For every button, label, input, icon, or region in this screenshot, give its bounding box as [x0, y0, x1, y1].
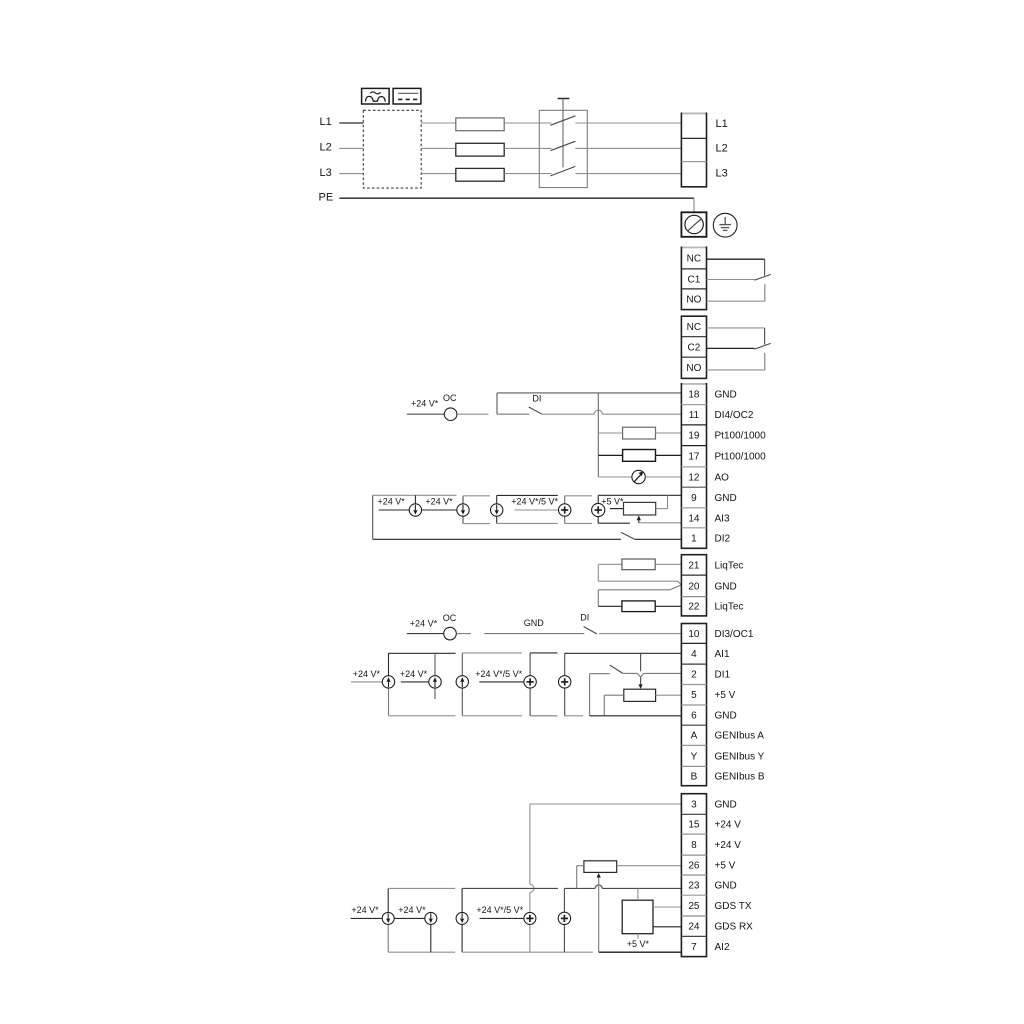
svg-text:21: 21 [688, 560, 700, 571]
svg-text:6: 6 [691, 711, 697, 722]
svg-text:L3: L3 [716, 167, 728, 179]
svg-text:OC: OC [443, 393, 457, 403]
svg-text:12: 12 [688, 472, 700, 483]
svg-text:Pt100/1000: Pt100/1000 [715, 431, 767, 442]
svg-text:DI2: DI2 [715, 533, 731, 544]
svg-text:20: 20 [688, 581, 700, 592]
svg-text:GDS RX: GDS RX [715, 922, 754, 933]
svg-text:9: 9 [691, 493, 697, 504]
svg-text:OC: OC [443, 613, 457, 623]
svg-text:L3: L3 [320, 167, 332, 179]
svg-text:+24 V*: +24 V* [400, 669, 428, 679]
svg-text:+24 V*: +24 V* [410, 618, 438, 628]
svg-text:DI: DI [532, 393, 541, 403]
svg-text:17: 17 [688, 452, 700, 463]
svg-text:+5 V*: +5 V* [601, 496, 624, 506]
svg-text:+24 V*: +24 V* [398, 905, 426, 915]
svg-text:PE: PE [319, 191, 334, 203]
svg-text:+24 V*/5 V*: +24 V*/5 V* [511, 496, 558, 506]
svg-text:+5 V*: +5 V* [627, 939, 650, 949]
svg-text:5: 5 [691, 690, 697, 701]
svg-text:1: 1 [691, 533, 697, 544]
svg-text:LiqTec: LiqTec [715, 560, 744, 571]
svg-text:NC: NC [687, 322, 701, 333]
svg-text:DI: DI [580, 613, 589, 623]
svg-text:NO: NO [686, 363, 701, 374]
svg-text:26: 26 [688, 860, 700, 871]
svg-text:14: 14 [688, 513, 700, 524]
svg-text:7: 7 [691, 942, 697, 953]
svg-text:+24 V*/5 V*: +24 V*/5 V* [476, 905, 523, 915]
svg-text:L2: L2 [320, 142, 332, 154]
svg-text:10: 10 [688, 629, 700, 640]
svg-text:AI3: AI3 [715, 513, 730, 524]
svg-text:+24 V: +24 V [715, 820, 742, 831]
svg-text:18: 18 [688, 390, 700, 401]
svg-text:A: A [691, 731, 698, 742]
svg-text:DI4/OC2: DI4/OC2 [715, 410, 754, 421]
svg-text:15: 15 [688, 820, 700, 831]
svg-text:GENIbus B: GENIbus B [715, 771, 765, 782]
svg-text:+24 V*: +24 V* [353, 669, 381, 679]
svg-text:22: 22 [688, 602, 700, 613]
svg-text:NO: NO [686, 295, 701, 306]
svg-text:AI1: AI1 [715, 649, 730, 660]
svg-text:DI1: DI1 [715, 670, 731, 681]
svg-text:GND: GND [715, 390, 737, 401]
svg-text:Pt100/1000: Pt100/1000 [715, 452, 767, 463]
svg-text:AI2: AI2 [715, 942, 730, 953]
svg-text:DI3/OC1: DI3/OC1 [715, 629, 754, 640]
svg-text:GND: GND [715, 799, 737, 810]
svg-text:L1: L1 [320, 116, 332, 128]
svg-text:C1: C1 [688, 274, 701, 285]
svg-text:GDS TX: GDS TX [715, 901, 752, 912]
svg-text:GND: GND [524, 618, 545, 628]
svg-text:GND: GND [715, 711, 737, 722]
svg-text:2: 2 [691, 670, 697, 681]
svg-text:B: B [691, 771, 698, 782]
svg-text:+24 V*/5 V*: +24 V*/5 V* [475, 669, 522, 679]
svg-text:Y: Y [691, 751, 698, 762]
svg-text:23: 23 [688, 881, 700, 892]
svg-text:GND: GND [715, 881, 737, 892]
svg-text:25: 25 [688, 901, 700, 912]
svg-text:+24 V*: +24 V* [411, 399, 439, 409]
svg-text:8: 8 [691, 840, 697, 851]
svg-text:GENIbus Y: GENIbus Y [715, 751, 765, 762]
svg-text:L1: L1 [716, 118, 728, 130]
svg-text:+5 V: +5 V [715, 860, 736, 871]
svg-text:3: 3 [691, 799, 697, 810]
svg-text:GENIbus A: GENIbus A [715, 731, 765, 742]
svg-text:+24 V*: +24 V* [351, 905, 379, 915]
svg-text:4: 4 [691, 649, 697, 660]
svg-text:GND: GND [715, 581, 737, 592]
svg-text:11: 11 [689, 410, 700, 421]
svg-text:AO: AO [715, 472, 730, 483]
svg-text:L2: L2 [716, 143, 728, 155]
svg-text:NC: NC [687, 254, 701, 265]
svg-text:C2: C2 [688, 342, 701, 353]
svg-text:+24 V: +24 V [715, 840, 742, 851]
svg-text:+24 V*: +24 V* [378, 496, 406, 506]
svg-text:LiqTec: LiqTec [715, 602, 744, 613]
svg-text:GND: GND [715, 493, 737, 504]
svg-text:24: 24 [688, 922, 700, 933]
svg-text:19: 19 [688, 431, 700, 442]
svg-text:+5 V: +5 V [715, 690, 736, 701]
svg-text:+24 V*: +24 V* [425, 496, 453, 506]
